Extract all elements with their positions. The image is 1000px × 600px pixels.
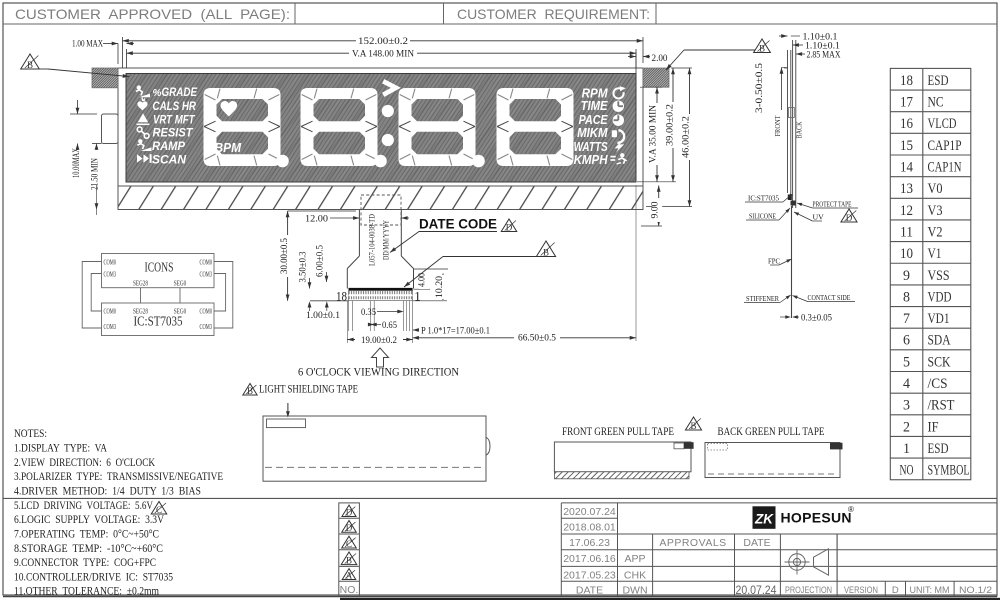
svg-text:ESD: ESD	[928, 73, 949, 89]
svg-text:10: 10	[900, 246, 913, 262]
svg-text:DWN: DWN	[622, 584, 647, 596]
svg-text:CALS HR: CALS HR	[153, 100, 197, 113]
svg-text:VDD: VDD	[928, 289, 952, 305]
svg-text:2.00: 2.00	[652, 54, 668, 64]
svg-text:2: 2	[903, 419, 910, 435]
svg-text:C: C	[156, 505, 162, 515]
svg-text:V3: V3	[928, 203, 943, 219]
svg-text:CUSTOMER REQUIREMENT:: CUSTOMER REQUIREMENT:	[457, 7, 650, 22]
svg-text:CONTACT SIDE: CONTACT SIDE	[808, 293, 851, 302]
svg-text:V.A 148.00 MIN: V.A 148.00 MIN	[352, 49, 414, 60]
svg-text:VSS: VSS	[928, 268, 950, 284]
svg-text:6 O'CLOCK VIEWING DIRECTION: 6 O'CLOCK VIEWING DIRECTION	[298, 365, 459, 379]
svg-text:3: 3	[903, 398, 910, 414]
svg-text:13: 13	[900, 181, 913, 197]
svg-text:2.VIEW DIRECTION: 6 O'CLOCK: 2.VIEW DIRECTION: 6 O'CLOCK	[14, 455, 155, 469]
svg-text:VLCD: VLCD	[928, 116, 957, 132]
svg-text:SILICONE: SILICONE	[749, 212, 776, 221]
svg-text:D: D	[346, 523, 353, 533]
svg-text:3-0.50±0.5: 3-0.50±0.5	[755, 63, 765, 113]
svg-text:152.00±0.2: 152.00±0.2	[358, 36, 408, 47]
svg-text:CUSTOMER APPROVED (ALL PAGE: CUSTOMER APPROVED (ALL PAGE):	[15, 7, 290, 22]
svg-text:DD/MM/YYYY: DD/MM/YYYY	[382, 220, 391, 260]
svg-text:SEG0: SEG0	[174, 307, 187, 316]
svg-text:0.35: 0.35	[361, 308, 376, 318]
svg-text:ESD: ESD	[928, 441, 949, 457]
svg-text:NC: NC	[928, 95, 944, 111]
svg-text:1.DISPLAY TYPE: VA: 1.DISPLAY TYPE: VA	[14, 441, 107, 455]
svg-text:UNIT: MM: UNIT: MM	[910, 585, 950, 596]
svg-text:4: 4	[903, 376, 910, 392]
svg-text:SYMBOL: SYMBOL	[928, 463, 970, 479]
svg-text:NO.1/2: NO.1/2	[959, 585, 992, 596]
svg-text:7.OPERATING TEMP: 0°C~+50°C: 7.OPERATING TEMP: 0°C~+50°C	[14, 526, 159, 540]
svg-text:IC:ST7035: IC:ST7035	[134, 314, 183, 329]
svg-text:/CS: /CS	[928, 376, 948, 392]
svg-text:FRONT: FRONT	[773, 115, 782, 136]
svg-text:6.00±0.5: 6.00±0.5	[316, 245, 326, 277]
svg-text:17.06.23: 17.06.23	[569, 537, 610, 549]
svg-text:COM0: COM0	[104, 307, 117, 316]
svg-text:LIGHT SHIELDING TAPE: LIGHT SHIELDING TAPE	[259, 382, 358, 396]
svg-text:L057-104-0038-TD: L057-104-0038-TD	[368, 214, 377, 266]
svg-text:SEG28: SEG28	[133, 279, 148, 288]
svg-text:66.50±0.5: 66.50±0.5	[518, 334, 556, 344]
svg-text:46.00±0.2: 46.00±0.2	[682, 116, 692, 158]
svg-text:9.CONNECTOR TYPE: COG+FPC: 9.CONNECTOR TYPE: COG+FPC	[14, 555, 156, 569]
svg-text:11.OTHER TOLERANCE: ±0.2mm: 11.OTHER TOLERANCE: ±0.2mm	[14, 584, 160, 598]
svg-text:SCAN: SCAN	[152, 153, 187, 166]
svg-text:4.DRIVER METHOD: 1/4 DUTY 1/3: 4.DRIVER METHOD: 1/4 DUTY 1/3 BIAS	[14, 483, 201, 497]
svg-text:GRADE: GRADE	[162, 86, 199, 99]
svg-text:0.65: 0.65	[382, 321, 397, 331]
svg-text:SEG0: SEG0	[174, 279, 187, 288]
svg-text:9: 9	[903, 268, 910, 284]
svg-text:D: D	[506, 222, 513, 232]
svg-text:FRONT GREEN PULL TAPE: FRONT GREEN PULL TAPE	[562, 426, 674, 438]
svg-text:B: B	[346, 555, 352, 565]
svg-text:COM3: COM3	[104, 270, 117, 279]
svg-text:PROTECT TAPE: PROTECT TAPE	[813, 200, 852, 209]
svg-text:11: 11	[900, 224, 913, 240]
svg-text:3.50±0.3: 3.50±0.3	[299, 251, 309, 282]
svg-text:1: 1	[414, 289, 421, 304]
svg-text:APPROVALS: APPROVALS	[659, 537, 726, 549]
svg-text:BACK: BACK	[795, 121, 804, 138]
svg-text:19.00±0.2: 19.00±0.2	[361, 336, 397, 346]
svg-text:APP: APP	[624, 553, 645, 565]
svg-text:STIFFENER: STIFFENER	[746, 294, 780, 303]
svg-text:3.POLARIZER TYPE: TRANSMISSIVE: 3.POLARIZER TYPE: TRANSMISSIVE/NEGATIVE	[14, 469, 223, 483]
svg-text:B: B	[690, 421, 696, 431]
svg-text:2017.05.23: 2017.05.23	[563, 569, 616, 581]
svg-text:VRT MFT: VRT MFT	[153, 113, 195, 126]
svg-text:COM0: COM0	[200, 258, 213, 267]
svg-text:9.00: 9.00	[651, 201, 661, 218]
svg-text:BACK GREEN PULL TAPE: BACK GREEN PULL TAPE	[718, 426, 825, 438]
svg-text:30.00±0.5: 30.00±0.5	[280, 238, 290, 274]
svg-text:V0: V0	[928, 181, 943, 197]
svg-text:20.07.24: 20.07.24	[736, 585, 778, 597]
svg-text:DATE CODE: DATE CODE	[419, 217, 497, 233]
svg-text:/RST: /RST	[928, 398, 955, 414]
svg-text:TIME: TIME	[581, 98, 609, 113]
svg-text:COM3: COM3	[200, 322, 213, 331]
svg-text:10.20: 10.20	[435, 276, 445, 298]
svg-text:12.00: 12.00	[305, 215, 328, 225]
svg-text:%: %	[153, 88, 162, 99]
svg-text:7: 7	[903, 311, 910, 327]
svg-text:D: D	[892, 585, 899, 596]
svg-text:V2: V2	[928, 224, 943, 240]
svg-text:1.00 MAX: 1.00 MAX	[72, 40, 103, 50]
svg-text:ZK: ZK	[754, 512, 774, 527]
svg-text:8: 8	[903, 289, 910, 305]
svg-text:CAP1N: CAP1N	[928, 160, 962, 176]
svg-text:14: 14	[900, 160, 913, 176]
svg-text:RAMP: RAMP	[152, 140, 185, 153]
svg-text:HOPESUN: HOPESUN	[781, 510, 852, 526]
svg-text:1.00±0.1: 1.00±0.1	[306, 311, 340, 321]
svg-text:NO.: NO.	[340, 584, 359, 596]
svg-text:16: 16	[900, 116, 913, 132]
svg-text:DATE: DATE	[576, 584, 603, 596]
svg-text:VD1: VD1	[928, 311, 950, 327]
svg-text:COM3: COM3	[104, 322, 117, 331]
svg-text:COM0: COM0	[104, 258, 117, 267]
svg-text:18: 18	[900, 73, 913, 89]
svg-text:18: 18	[336, 289, 347, 304]
svg-text:COM3: COM3	[200, 270, 213, 279]
svg-text:1: 1	[903, 441, 910, 457]
svg-text:SDA: SDA	[928, 333, 951, 349]
svg-text:6: 6	[903, 333, 910, 349]
svg-text:IF: IF	[928, 419, 939, 435]
svg-text:PROJECTION: PROJECTION	[785, 585, 832, 596]
svg-text:VERSION: VERSION	[844, 585, 878, 596]
svg-text:B: B	[759, 43, 765, 53]
svg-text:0.3±0.05: 0.3±0.05	[801, 313, 832, 323]
svg-text:17: 17	[900, 95, 913, 111]
svg-text:6.LOGIC SUPPLY VOLTAGE: 3.3V: 6.LOGIC SUPPLY VOLTAGE: 3.3V	[14, 512, 164, 526]
svg-text:KMPH: KMPH	[574, 152, 608, 167]
svg-text:P 1.0*17=17.00±0.1: P 1.0*17=17.00±0.1	[421, 327, 490, 337]
svg-text:2.85 MAX: 2.85 MAX	[807, 50, 841, 60]
svg-text:21.50 MIN: 21.50 MIN	[91, 158, 101, 190]
svg-text:DATE: DATE	[743, 537, 770, 549]
svg-text:COM0: COM0	[200, 307, 213, 316]
svg-text:®: ®	[848, 505, 854, 514]
svg-text:5: 5	[903, 354, 910, 370]
svg-text:ICONS: ICONS	[145, 260, 174, 275]
svg-text:V.A 35.00 MIN: V.A 35.00 MIN	[649, 105, 659, 163]
svg-text:BPM: BPM	[215, 140, 243, 155]
svg-text:8.STORAGE TEMP: -10°C~+60°C: 8.STORAGE TEMP: -10°C~+60°C	[14, 541, 163, 555]
svg-text:15: 15	[900, 138, 913, 154]
svg-text:CAP1P: CAP1P	[928, 138, 962, 154]
svg-text:5.LCD DRIVING VOLTAGE: 5.6V: 5.LCD DRIVING VOLTAGE: 5.6V	[14, 498, 153, 512]
svg-text:NOTES:: NOTES:	[14, 426, 47, 440]
svg-text:UV: UV	[813, 213, 825, 222]
svg-text:10.CONTROLLER/DRIVE IC: ST7035: 10.CONTROLLER/DRIVE IC: ST7035	[14, 569, 173, 583]
svg-text:2017.06.16: 2017.06.16	[563, 553, 616, 565]
svg-text:12: 12	[900, 203, 913, 219]
svg-text:10.00MAX: 10.00MAX	[72, 148, 82, 178]
svg-text:NO: NO	[900, 463, 914, 479]
svg-text:SEG28: SEG28	[133, 307, 148, 316]
svg-text:2020.07.24: 2020.07.24	[563, 506, 616, 518]
svg-text:39.00±0.2: 39.00±0.2	[666, 104, 676, 146]
svg-text:SCK: SCK	[928, 354, 951, 370]
svg-text:CHK: CHK	[624, 569, 646, 581]
svg-text:FPC: FPC	[768, 257, 780, 266]
svg-text:V1: V1	[928, 246, 942, 262]
svg-text:IC:ST7035: IC:ST7035	[748, 194, 779, 203]
svg-text:2018.08.01: 2018.08.01	[563, 521, 616, 533]
svg-text:RESIST: RESIST	[153, 127, 194, 140]
